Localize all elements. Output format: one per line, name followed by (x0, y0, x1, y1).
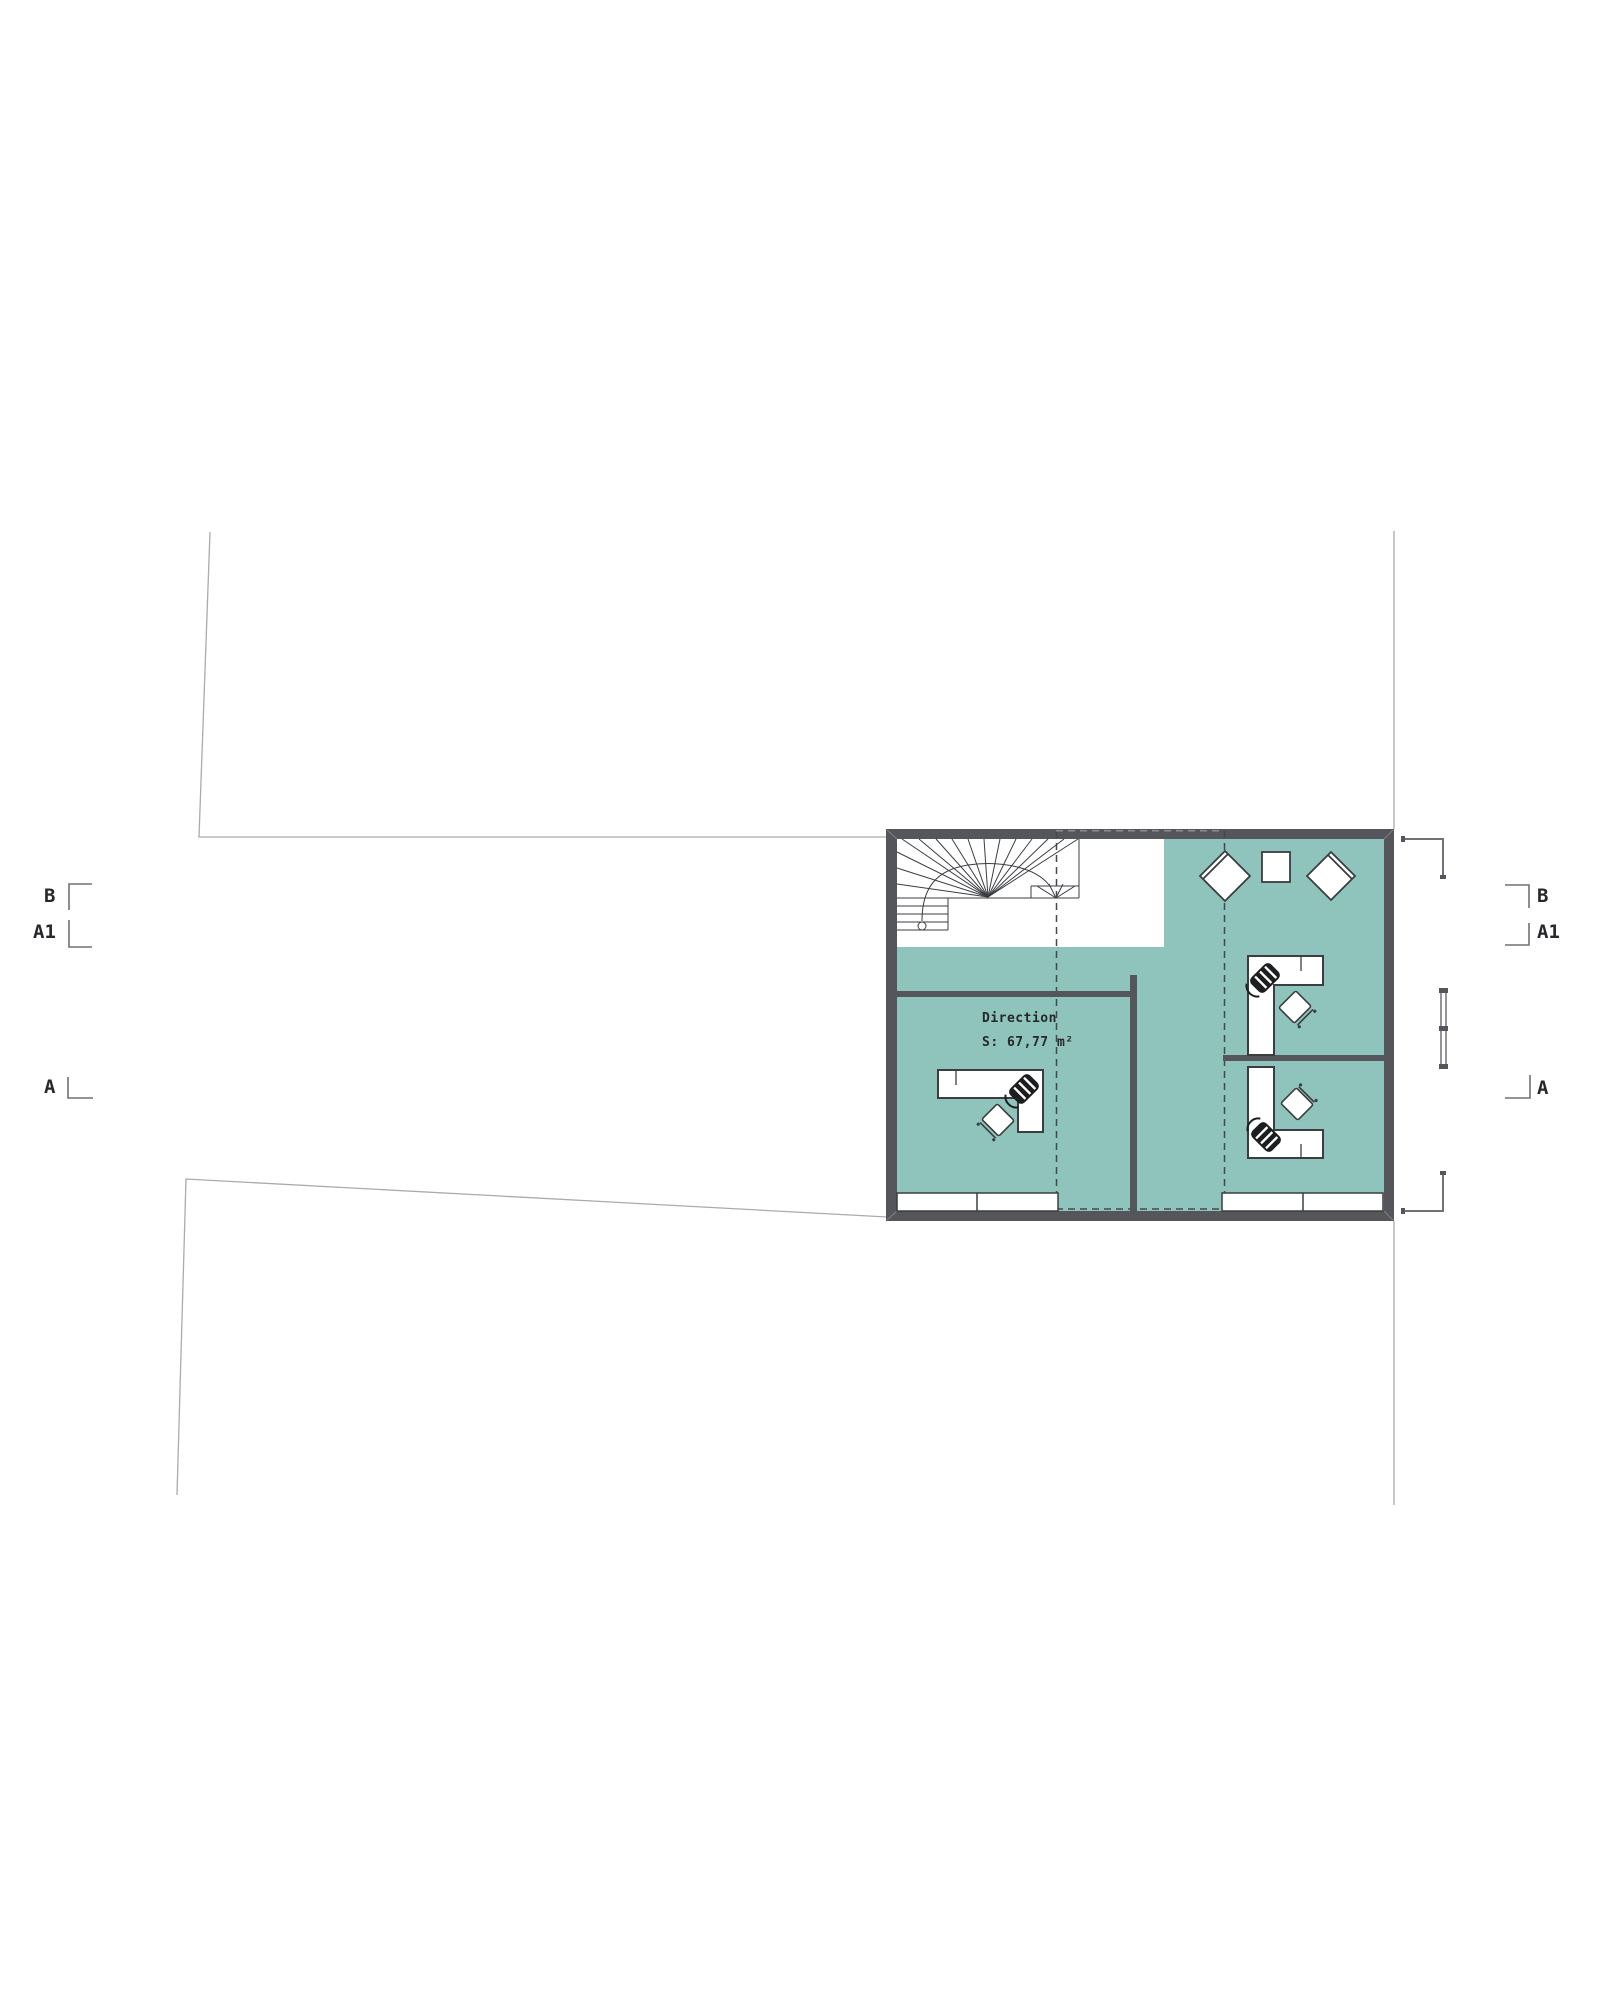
direction-room-wall-horizontal (897, 991, 1130, 997)
section-bracket-left-a (68, 1077, 93, 1098)
section-label-right-a: A (1537, 1079, 1548, 1098)
exterior-facade-markers (1401, 836, 1448, 1214)
facade-window-right (1439, 988, 1448, 1069)
section-label-right-b: B (1537, 887, 1548, 906)
balcony-bracket-top (1403, 839, 1443, 878)
section-label-left-a: A (44, 1078, 55, 1097)
floor-plan-page: B A1 A B A1 A Direction S: 67,77 m² (0, 0, 1600, 2000)
section-bracket-right-a1 (1505, 923, 1529, 945)
section-bracket-left-a1 (69, 920, 92, 947)
section-label-left-a1: A1 (33, 923, 56, 942)
section-bracket-right-b (1505, 885, 1529, 908)
boundary-upper-left (199, 532, 887, 837)
section-label-right-a1: A1 (1537, 923, 1560, 942)
floor-plan-drawing (0, 0, 1600, 2000)
room-name-label: Direction (982, 1012, 1057, 1025)
central-wall-vertical (1130, 975, 1137, 1211)
section-bracket-left-b (69, 884, 92, 910)
side-table (1262, 852, 1290, 882)
boundary-lower-left (177, 1179, 887, 1495)
balcony-bracket-bottom (1403, 1173, 1443, 1211)
section-label-left-b: B (44, 887, 55, 906)
section-bracket-right-a (1505, 1075, 1530, 1098)
room-area-label: S: 67,77 m² (982, 1036, 1074, 1049)
